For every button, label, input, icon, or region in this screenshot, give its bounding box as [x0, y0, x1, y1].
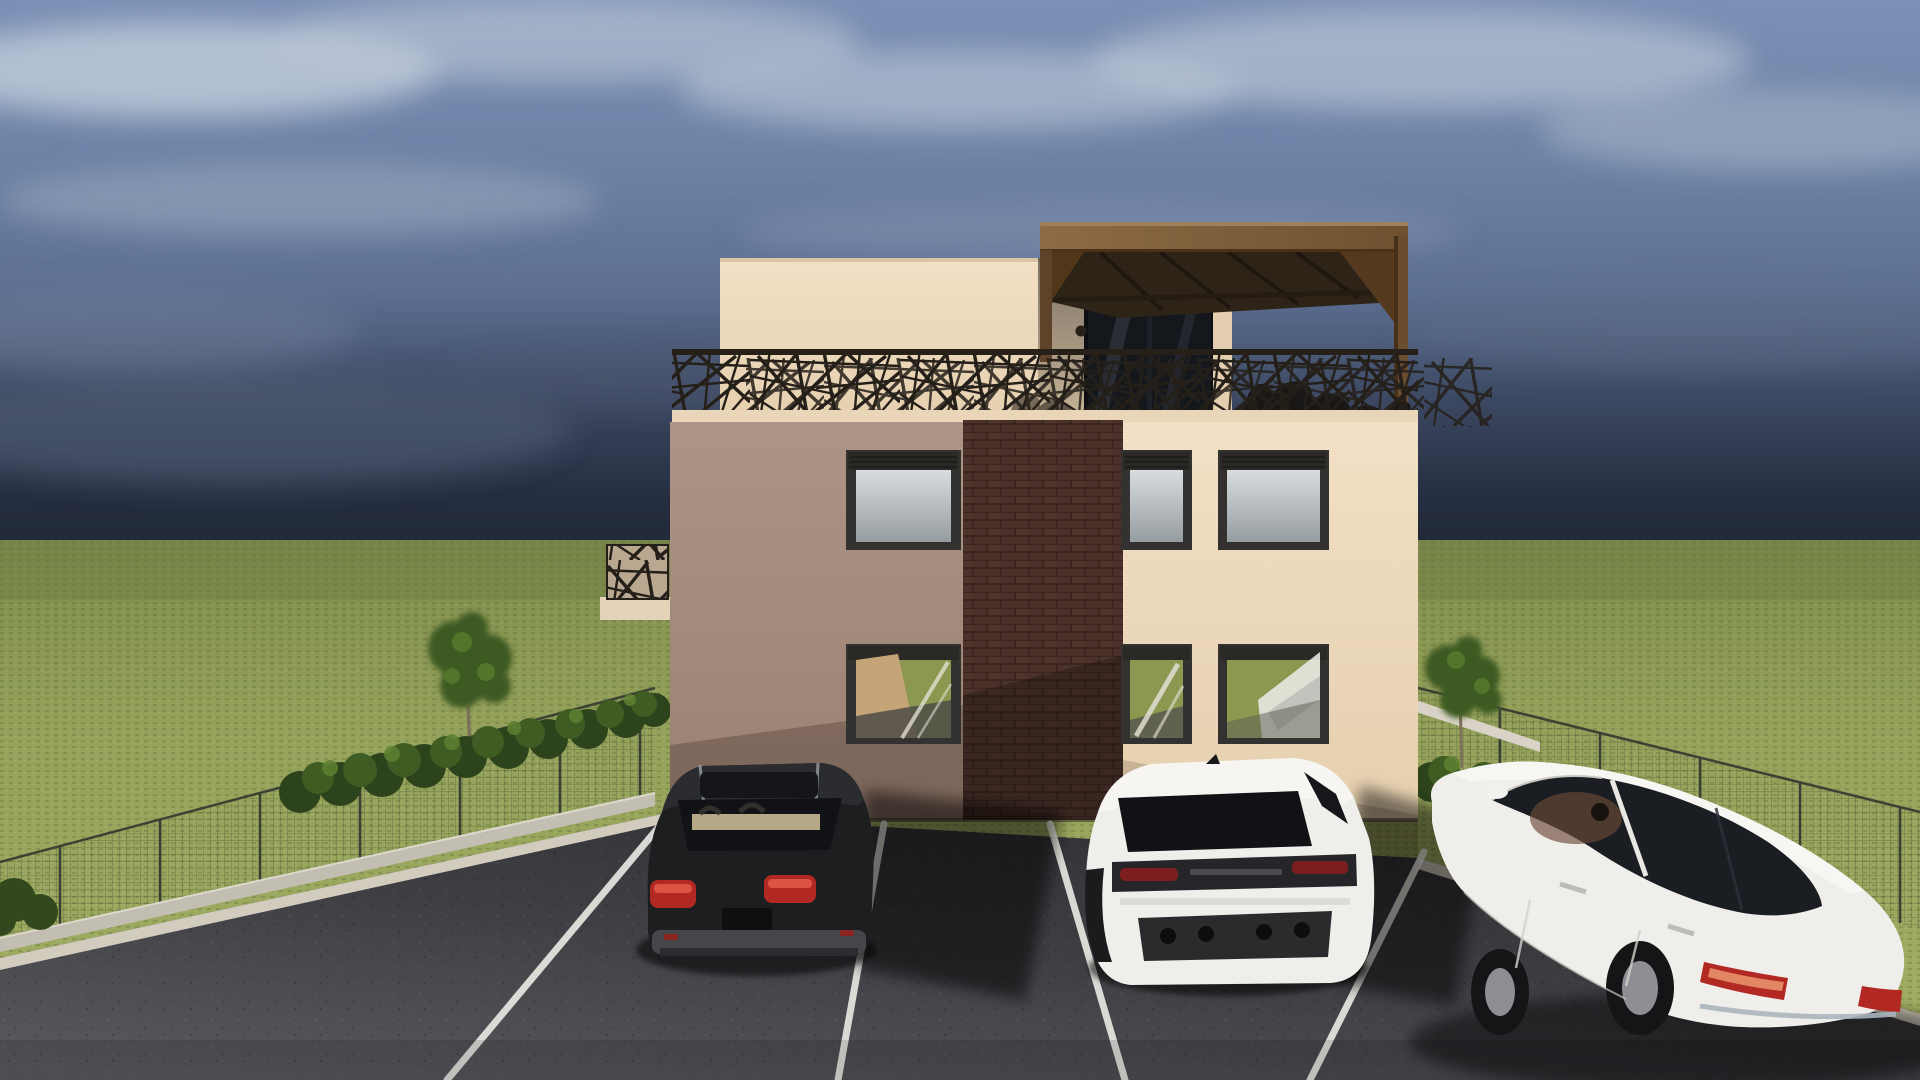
window-upper-right [1218, 450, 1329, 550]
car-black-suv [648, 763, 874, 959]
car-white-suv [1085, 754, 1374, 985]
window-upper-middle [1121, 450, 1192, 550]
side-balcony-panel [600, 545, 670, 620]
window-ground-left [846, 644, 961, 744]
wall-lamp-left [1076, 326, 1087, 337]
render-viewport [0, 0, 1920, 1080]
sedan-mirror [1484, 785, 1508, 799]
urus-rear-window [1118, 791, 1312, 852]
pergola-fascia [1040, 222, 1408, 252]
pergola-post-left [1040, 250, 1052, 362]
foreground-vignette [0, 1040, 1920, 1080]
scene-svg [0, 0, 1920, 1080]
window-ground-middle [1121, 644, 1192, 744]
window-upper-left [846, 450, 961, 550]
window-ground-right [1218, 644, 1329, 744]
